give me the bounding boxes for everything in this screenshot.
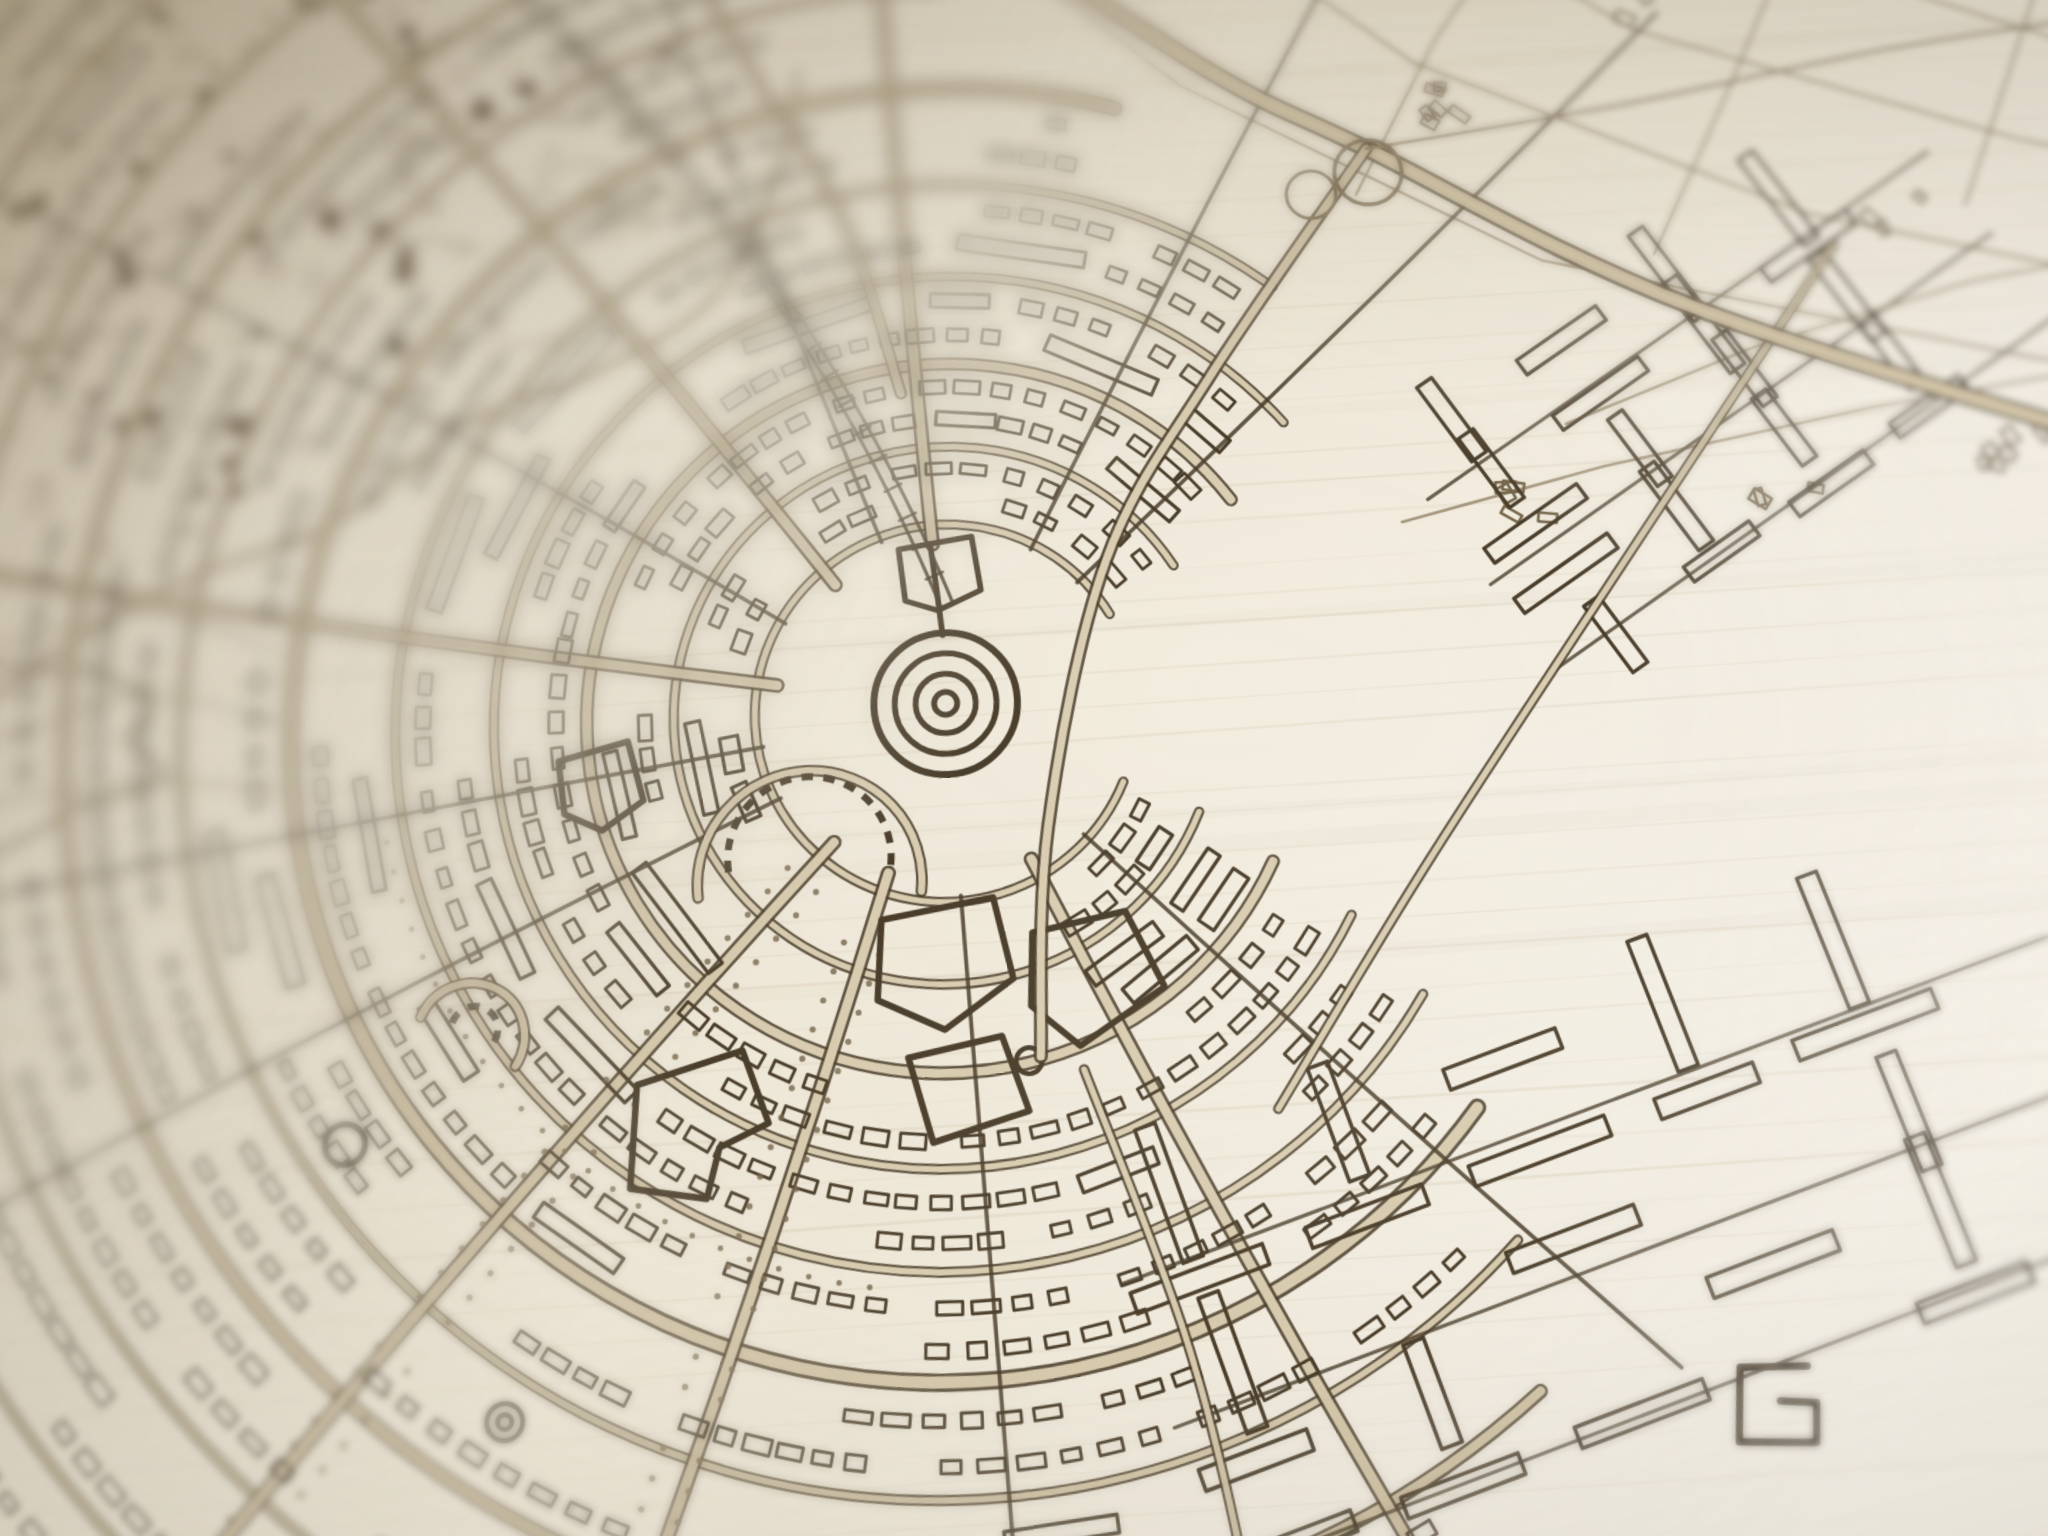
map-board bbox=[0, 0, 2048, 1536]
photo-of-wooden-city-map bbox=[0, 0, 2048, 1536]
engraved-map-artwork bbox=[0, 0, 2048, 1536]
